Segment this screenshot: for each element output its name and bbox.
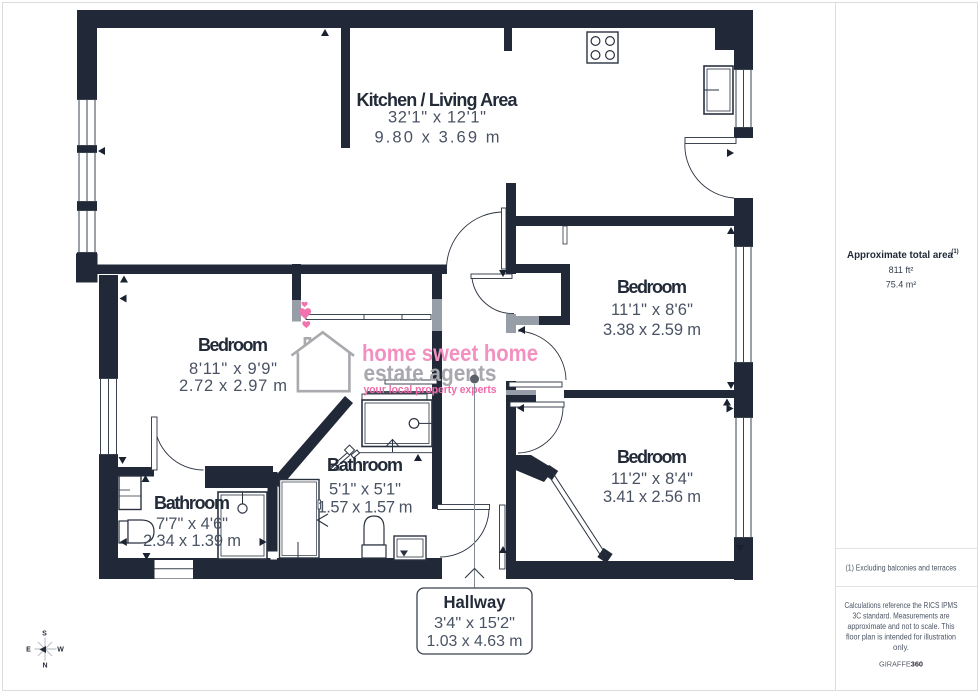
svg-text:N: N xyxy=(42,663,47,670)
svg-text:(1): (1) xyxy=(951,249,958,255)
svg-text:2.34 x 1.39 m: 2.34 x 1.39 m xyxy=(143,532,241,550)
svg-text:GIRAFFE360: GIRAFFE360 xyxy=(879,660,923,669)
svg-text:Approximate total area: Approximate total area xyxy=(847,250,953,261)
svg-text:floor plan is intended for ill: floor plan is intended for illustration xyxy=(846,633,956,642)
svg-text:7'7" x 4'6": 7'7" x 4'6" xyxy=(156,515,228,533)
svg-text:Bathroom: Bathroom xyxy=(327,455,403,475)
svg-text:Calculations reference the RIC: Calculations reference the RICS IPMS xyxy=(845,601,958,610)
svg-text:1.57 x 1.57 m: 1.57 x 1.57 m xyxy=(318,499,413,517)
svg-text:Bedroom: Bedroom xyxy=(198,335,268,355)
svg-text:Hallway: Hallway xyxy=(444,592,506,612)
svg-text:(1) Excluding balconies and te: (1) Excluding balconies and terraces xyxy=(846,564,957,573)
svg-text:Bedroom: Bedroom xyxy=(617,277,687,297)
svg-text:your local property experts: your local property experts xyxy=(364,384,497,396)
svg-text:Bedroom: Bedroom xyxy=(617,447,687,467)
svg-text:S: S xyxy=(42,631,47,638)
svg-text:811 ft²: 811 ft² xyxy=(889,265,914,275)
svg-text:11'2" x 8'4": 11'2" x 8'4" xyxy=(611,470,693,488)
svg-text:only.: only. xyxy=(893,643,909,652)
svg-text:Kitchen / Living Area: Kitchen / Living Area xyxy=(357,90,519,110)
svg-text:3C standard. Measurements are: 3C standard. Measurements are xyxy=(853,612,950,621)
svg-text:8'11" x 9'9": 8'11" x 9'9" xyxy=(189,360,277,378)
svg-text:E: E xyxy=(26,647,31,654)
svg-text:75.4 m²: 75.4 m² xyxy=(886,280,917,290)
svg-text:approximate and not to scale.: approximate and not to scale. This xyxy=(848,622,955,631)
svg-text:Bathroom: Bathroom xyxy=(154,493,230,513)
svg-text:2.72 x 2.97 m: 2.72 x 2.97 m xyxy=(179,377,287,395)
svg-text:3.41 x 2.56 m: 3.41 x 2.56 m xyxy=(603,488,701,506)
svg-text:3.38 x 2.59 m: 3.38 x 2.59 m xyxy=(603,321,701,339)
svg-text:11'1" x 8'6": 11'1" x 8'6" xyxy=(611,301,693,319)
svg-text:W: W xyxy=(57,647,64,654)
svg-text:1.03 x 4.63 m: 1.03 x 4.63 m xyxy=(427,633,523,650)
svg-text:32'1" x 12'1": 32'1" x 12'1" xyxy=(388,109,486,127)
svg-text:5'1" x 5'1": 5'1" x 5'1" xyxy=(329,481,401,499)
svg-text:3'4" x 15'2": 3'4" x 15'2" xyxy=(434,615,515,632)
